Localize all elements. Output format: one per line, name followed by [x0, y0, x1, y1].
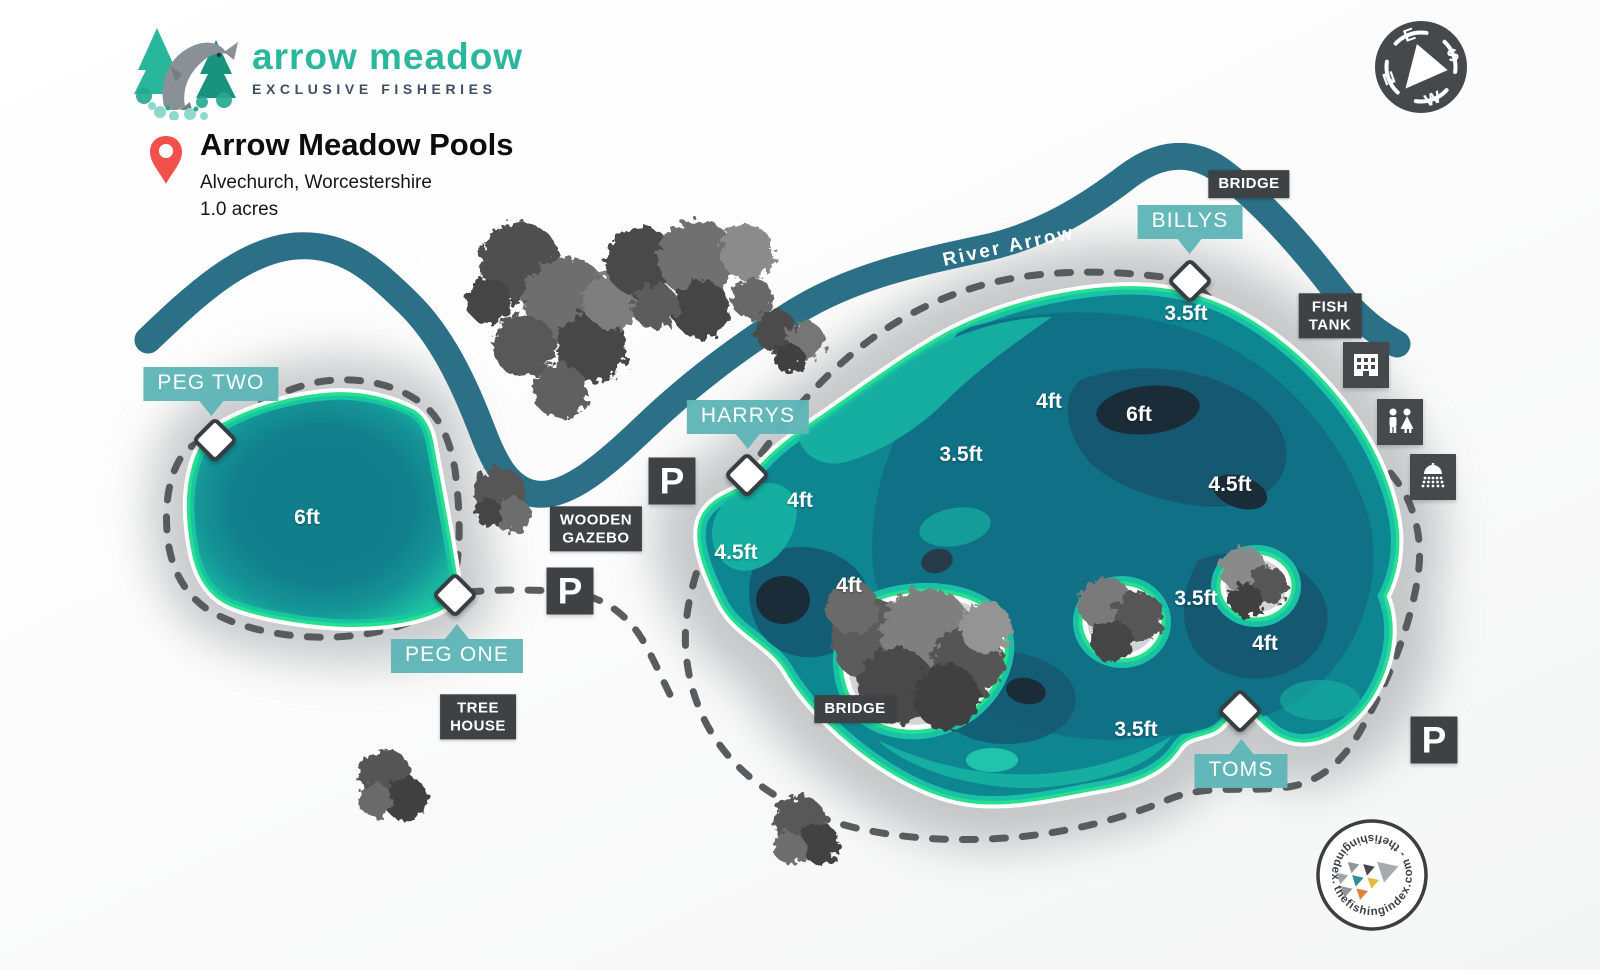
peg-badge-toms: TOMS — [1194, 754, 1287, 788]
depth-label: 3.5ft — [1114, 718, 1157, 741]
parking-icon: P — [649, 458, 696, 505]
depth-label: 4ft — [787, 489, 813, 512]
feature-badge-bridge-top: BRIDGE — [1208, 170, 1289, 198]
depth-label: 4ft — [1252, 632, 1278, 655]
location-pin-icon — [146, 132, 186, 202]
depth-label: 3.5ft — [939, 443, 982, 466]
compass: E S W N — [1353, 0, 1489, 134]
location-text: Alvechurch, Worcestershire — [200, 172, 513, 194]
area-text: 1.0 acres — [200, 199, 513, 221]
fishery-map-page: River Arrow River Arrow — [0, 0, 1600, 970]
feature-badge-fish-tank: FISH TANK — [1299, 293, 1362, 338]
brand-logo — [124, 14, 240, 120]
depth-label: 4ft — [836, 574, 862, 597]
peg-badge-billys: BILLYS — [1138, 205, 1243, 239]
depth-label: 4ft — [1036, 390, 1062, 413]
brand-text: arrow meadow EXCLUSIVE FISHERIES — [252, 38, 523, 97]
parking-icon: P — [547, 568, 594, 615]
feature-badge-wooden-gazebo: WOODEN GAZEBO — [550, 506, 642, 551]
peg-badge-harrys: HARRYS — [687, 400, 809, 434]
depth-label: 6ft — [1126, 403, 1152, 426]
depth-label: 3.5ft — [1164, 302, 1207, 325]
toilets-icon — [1377, 399, 1423, 445]
tree-cluster — [466, 220, 825, 418]
depth-label: 4.5ft — [714, 541, 757, 564]
depth-label: 4.5ft — [1208, 473, 1251, 496]
page-title: Arrow Meadow Pools — [200, 129, 513, 162]
shower-icon — [1410, 454, 1456, 500]
feature-badge-bridge-island: BRIDGE — [814, 695, 895, 723]
peg-badge-peg-one: PEG ONE — [391, 639, 523, 673]
pool-one — [192, 398, 452, 622]
peg-badge-peg-two: PEG TWO — [143, 367, 278, 401]
depth-label: 3.5ft — [1174, 587, 1217, 610]
depth-label: 6ft — [294, 506, 320, 529]
parking-icon: P — [1411, 717, 1458, 764]
fishing-index-logo[interactable]: thefishingindex.com - thefishingindex.co… — [1310, 813, 1434, 937]
brand-name: arrow meadow — [252, 38, 523, 75]
title-block: Arrow Meadow Pools Alvechurch, Worcester… — [200, 129, 513, 221]
feature-badge-tree-house: TREE HOUSE — [440, 694, 516, 739]
fish-tank-building-icon — [1343, 342, 1389, 388]
brand-tagline: EXCLUSIVE FISHERIES — [252, 81, 523, 97]
